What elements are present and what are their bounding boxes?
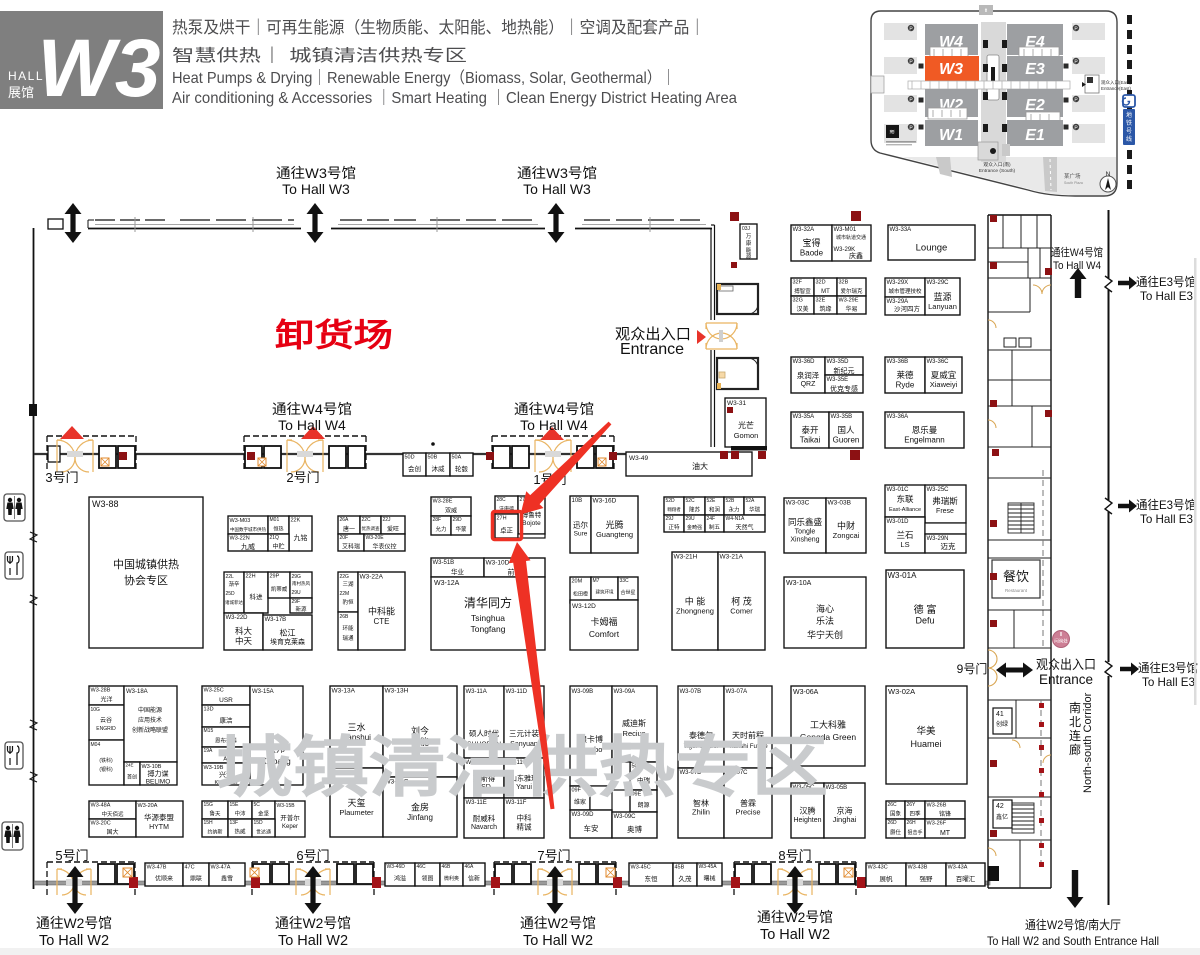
- svg-text:中国能源: 中国能源: [138, 706, 162, 714]
- svg-text:Jinghai: Jinghai: [833, 815, 857, 824]
- svg-text:百曜汇: 百曜汇: [956, 875, 976, 883]
- svg-text:会创: 会创: [408, 464, 421, 473]
- svg-text:华宁天创: 华宁天创: [807, 629, 843, 640]
- svg-text:W3-05B: W3-05B: [826, 785, 848, 791]
- svg-text:To Hall E3: To Hall E3: [1142, 675, 1195, 689]
- svg-text:四季: 四季: [909, 810, 921, 818]
- svg-text:能: 能: [746, 246, 752, 254]
- svg-text:22M: 22M: [340, 591, 350, 597]
- svg-text:世达通: 世达通: [256, 828, 271, 835]
- svg-text:Tongle: Tongle: [795, 528, 816, 535]
- svg-text:华易: 华易: [845, 305, 857, 313]
- svg-text:W3: W3: [38, 23, 161, 114]
- svg-text:东联: 东联: [896, 494, 914, 504]
- svg-text:(银科): (银科): [99, 766, 113, 773]
- svg-text:弗瑞斯: 弗瑞斯: [932, 496, 958, 506]
- svg-text:26D: 26D: [888, 820, 898, 826]
- svg-text:W3-20A: W3-20A: [138, 803, 158, 809]
- svg-text:热泵及烘干｜可再生能源（生物质能、太阳能、地热能）｜空调及配: 热泵及烘干｜可再生能源（生物质能、太阳能、地热能）｜空调及配套产品｜: [172, 18, 705, 37]
- svg-text:中财: 中财: [837, 520, 855, 531]
- svg-text:W3-29E: W3-29E: [839, 298, 859, 304]
- svg-text:合世星: 合世星: [620, 589, 635, 596]
- svg-text:32D: 32D: [816, 280, 826, 286]
- svg-text:餐饮: 餐饮: [1003, 569, 1029, 584]
- svg-text:南: 南: [1069, 700, 1081, 715]
- svg-text:轮毂: 轮毂: [455, 464, 469, 473]
- svg-text:10G: 10G: [91, 707, 101, 713]
- svg-text:爵仕: 爵仕: [890, 828, 902, 836]
- svg-text:22C: 22C: [362, 517, 372, 523]
- svg-text:Sure: Sure: [574, 530, 588, 537]
- svg-text:展帆: 展帆: [880, 874, 894, 883]
- svg-text:32G: 32G: [793, 298, 803, 304]
- svg-text:32B: 32B: [839, 280, 849, 286]
- svg-text:W3-43B: W3-43B: [908, 865, 928, 871]
- svg-text:奥博: 奥博: [627, 824, 642, 834]
- svg-text:W3-29A: W3-29A: [887, 299, 909, 305]
- svg-text:W3-47B: W3-47B: [147, 865, 167, 871]
- svg-text:凯蒂威: 凯蒂威: [271, 585, 288, 593]
- svg-text:松江: 松江: [280, 628, 296, 638]
- svg-text:华表仪控: 华表仪控: [372, 542, 396, 550]
- svg-text:华源泰盟: 华源泰盟: [144, 812, 174, 822]
- svg-text:康: 康: [746, 239, 752, 247]
- svg-text:To Hall W2: To Hall W2: [760, 927, 830, 943]
- svg-text:W3-13A: W3-13A: [332, 688, 356, 695]
- svg-text:21Q: 21Q: [270, 535, 280, 541]
- svg-text:Zhongneng: Zhongneng: [676, 607, 714, 616]
- svg-text:To Hall W2: To Hall W2: [278, 933, 348, 949]
- svg-text:33C: 33C: [620, 578, 630, 584]
- svg-text:W3-22D: W3-22D: [226, 615, 249, 621]
- svg-text:通往W2号馆: 通往W2号馆: [520, 915, 596, 931]
- svg-text:汉腾: 汉腾: [800, 806, 816, 816]
- svg-text:E2: E2: [1025, 97, 1045, 114]
- svg-text:Entrance: Entrance: [1039, 672, 1093, 687]
- svg-text:W3-16D: W3-16D: [593, 498, 617, 505]
- svg-text:W3-06A: W3-06A: [793, 689, 819, 696]
- svg-text:≋: ≋: [889, 129, 895, 136]
- svg-text:W3-25C: W3-25C: [204, 688, 224, 694]
- svg-text:9号门: 9号门: [957, 661, 988, 676]
- svg-text:光洋: 光洋: [100, 696, 112, 704]
- svg-text:32E: 32E: [816, 298, 826, 304]
- svg-text:唐一: 唐一: [343, 525, 355, 533]
- svg-text:号: 号: [1126, 128, 1132, 135]
- svg-text:华业: 华业: [451, 567, 465, 576]
- svg-text:车安: 车安: [584, 823, 599, 833]
- svg-text:兰石: 兰石: [896, 530, 913, 540]
- svg-text:29J: 29J: [666, 516, 675, 522]
- svg-text:W3-01D: W3-01D: [887, 519, 910, 525]
- svg-text:通往W2号馆: 通往W2号馆: [275, 915, 351, 931]
- svg-text:鸿溢: 鸿溢: [394, 874, 406, 882]
- svg-text:Lounge: Lounge: [916, 242, 948, 253]
- svg-text:52D: 52D: [666, 498, 676, 504]
- svg-text:W3-18A: W3-18A: [126, 689, 148, 695]
- svg-text:Lanyuan: Lanyuan: [928, 302, 957, 311]
- svg-text:通往E3号馆: 通往E3号馆: [1136, 497, 1196, 512]
- svg-text:Baode: Baode: [800, 249, 824, 258]
- svg-text:恩乐曼: 恩乐曼: [912, 425, 938, 435]
- svg-text:鑫亿: 鑫亿: [996, 813, 1008, 821]
- svg-text:信新: 信新: [468, 874, 480, 882]
- svg-text:Guangteng: Guangteng: [596, 530, 633, 539]
- svg-text:47C: 47C: [185, 865, 195, 871]
- svg-text:W3-07B: W3-07B: [680, 689, 702, 695]
- svg-text:W3-36D: W3-36D: [793, 359, 816, 365]
- svg-text:W3-M03: W3-M03: [230, 518, 251, 524]
- svg-text:13F: 13F: [230, 820, 239, 826]
- svg-text:正特: 正特: [668, 523, 680, 531]
- svg-text:柯 茂: 柯 茂: [731, 596, 752, 607]
- svg-text:ENGRID: ENGRID: [96, 726, 116, 732]
- svg-text:Heat Pumps & Drying｜Renewable: Heat Pumps & Drying｜Renewable Energy（Bio…: [172, 69, 676, 87]
- svg-text:27H: 27H: [497, 516, 507, 522]
- svg-text:W3-35B: W3-35B: [831, 414, 853, 420]
- svg-text:6号门: 6号门: [296, 848, 329, 863]
- svg-text:W3-51B: W3-51B: [433, 560, 455, 566]
- svg-text:Huamei: Huamei: [910, 739, 941, 749]
- svg-text:Xinsheng: Xinsheng: [790, 537, 819, 544]
- svg-text:To Hall W3: To Hall W3: [282, 181, 350, 197]
- svg-text:环能: 环能: [342, 624, 354, 632]
- svg-text:5号门: 5号门: [55, 848, 88, 863]
- svg-text:26B: 26B: [340, 614, 350, 620]
- svg-text:和润: 和润: [709, 506, 721, 514]
- svg-text:Entrance (South): Entrance (South): [979, 168, 1016, 174]
- svg-text:To Hall W4: To Hall W4: [278, 417, 346, 433]
- svg-text:26C: 26C: [888, 802, 898, 808]
- svg-text:52A: 52A: [746, 498, 756, 504]
- svg-text:北: 北: [1069, 715, 1081, 729]
- svg-text:W3-47A: W3-47A: [211, 865, 231, 871]
- svg-text:久茂: 久茂: [679, 874, 693, 883]
- svg-text:Defu: Defu: [915, 616, 934, 626]
- svg-text:29G: 29G: [292, 574, 302, 580]
- svg-text:搏力谋: 搏力谋: [148, 769, 169, 778]
- svg-text:Frese: Frese: [936, 508, 954, 515]
- svg-text:To Hall W3: To Hall W3: [523, 181, 591, 197]
- svg-text:问询处: 问询处: [1054, 638, 1068, 645]
- svg-text:19A: 19A: [204, 748, 214, 754]
- svg-text:W3-13H: W3-13H: [385, 688, 409, 695]
- svg-text:热威: 热威: [234, 828, 246, 836]
- svg-text:W3-03B: W3-03B: [828, 500, 851, 507]
- svg-text:Comer: Comer: [730, 607, 753, 616]
- svg-text:W3-15A: W3-15A: [252, 689, 274, 695]
- svg-text:智慧供热｜ 城镇清洁供热专区: 智慧供热｜ 城镇清洁供热专区: [172, 46, 467, 65]
- svg-text:20M: 20M: [572, 579, 583, 585]
- svg-text:观众出入口: 观众出入口: [1036, 657, 1096, 672]
- svg-text:制五: 制五: [709, 523, 721, 531]
- svg-text:Gomon: Gomon: [734, 431, 759, 440]
- svg-text:隆苏: 隆苏: [689, 506, 701, 514]
- svg-text:城市管理技校: 城市管理技校: [888, 287, 922, 295]
- svg-text:Plaumeter: Plaumeter: [339, 808, 374, 817]
- svg-text:通往E3号馆: 通往E3号馆: [1136, 274, 1196, 289]
- svg-text:W3-09B: W3-09B: [572, 689, 594, 695]
- svg-text:Restaurant: Restaurant: [1005, 588, 1028, 593]
- svg-text:中贮: 中贮: [272, 542, 284, 550]
- svg-text:通往W2号馆: 通往W2号馆: [757, 909, 833, 925]
- svg-text:通往W2号馆: 通往W2号馆: [36, 915, 112, 931]
- svg-text:W3-25C: W3-25C: [927, 487, 950, 493]
- svg-text:W3-12D: W3-12D: [572, 603, 596, 610]
- svg-text:10B: 10B: [572, 498, 583, 504]
- svg-text:22H: 22H: [246, 574, 256, 580]
- svg-text:泉润泽: 泉润泽: [797, 370, 820, 380]
- svg-text:W3-11D: W3-11D: [506, 689, 528, 695]
- svg-text:展馆: 展馆: [8, 85, 34, 100]
- svg-text:云谷: 云谷: [100, 716, 112, 724]
- svg-text:康洁: 康洁: [220, 715, 234, 724]
- svg-text:52E: 52E: [707, 498, 717, 504]
- svg-text:MT: MT: [821, 289, 830, 295]
- svg-text:豹恒: 豹恒: [342, 598, 354, 606]
- svg-text:22K: 22K: [291, 518, 301, 524]
- svg-text:耐威科: 耐威科: [473, 813, 496, 823]
- svg-text:源: 源: [746, 252, 752, 260]
- svg-text:恒热: 恒热: [273, 525, 283, 532]
- svg-text:Precise: Precise: [735, 808, 760, 817]
- svg-text:15G: 15G: [204, 802, 214, 808]
- svg-text:鼎联: 鼎联: [190, 875, 202, 883]
- svg-text:46A: 46A: [465, 864, 475, 870]
- svg-text:城市轨道交通: 城市轨道交通: [836, 234, 866, 241]
- svg-text:蓝源: 蓝源: [933, 291, 951, 302]
- svg-text:W3-43A: W3-43A: [948, 865, 968, 871]
- svg-text:W3-22N: W3-22N: [230, 536, 250, 542]
- svg-text:科大: 科大: [235, 626, 253, 636]
- svg-text:46B: 46B: [442, 864, 452, 870]
- svg-text:W3-20C: W3-20C: [91, 821, 111, 827]
- svg-text:国大: 国大: [106, 828, 118, 836]
- svg-text:W3-21H: W3-21H: [674, 554, 698, 561]
- svg-text:W3-M01: W3-M01: [834, 227, 857, 233]
- svg-text:Engelmann: Engelmann: [904, 435, 944, 444]
- svg-text:Air conditioning & Accessories: Air conditioning & Accessories ｜Smart He…: [172, 89, 737, 107]
- svg-text:地: 地: [1126, 111, 1132, 119]
- svg-text:M04: M04: [91, 742, 101, 748]
- svg-text:W3-20E: W3-20E: [366, 535, 385, 541]
- svg-text:铭锋: 铭锋: [939, 810, 951, 818]
- svg-text:W3-36C: W3-36C: [927, 359, 950, 365]
- svg-text:M7: M7: [593, 578, 600, 584]
- svg-text:W3-03C: W3-03C: [786, 500, 810, 507]
- svg-text:万: 万: [746, 233, 752, 240]
- svg-text:29U: 29U: [686, 516, 696, 522]
- svg-text:南村热风: 南村热风: [292, 580, 310, 587]
- svg-text:W3-33A: W3-33A: [890, 227, 912, 233]
- svg-text:爱尔瑞克: 爱尔瑞克: [840, 287, 863, 295]
- svg-text:26Y: 26Y: [907, 802, 917, 808]
- svg-text:W3-36B: W3-36B: [887, 359, 909, 365]
- svg-text:22J: 22J: [383, 517, 392, 523]
- svg-text:W3-45A: W3-45A: [699, 864, 718, 870]
- svg-text:国人: 国人: [837, 425, 855, 435]
- svg-text:天然气: 天然气: [735, 523, 753, 531]
- svg-text:诸城菲达: 诸城菲达: [225, 599, 243, 606]
- svg-text:双威: 双威: [445, 507, 457, 515]
- svg-text:工大科雅: 工大科雅: [810, 719, 846, 730]
- svg-text:优克专感: 优克专感: [830, 384, 858, 393]
- svg-text:爱旺: 爱旺: [387, 525, 399, 533]
- svg-text:⬆: ⬆: [984, 8, 988, 14]
- svg-text:29F: 29F: [292, 599, 301, 605]
- svg-text:W3-17B: W3-17B: [265, 617, 287, 623]
- svg-text:三湖: 三湖: [342, 580, 354, 588]
- svg-text:E1: E1: [1025, 127, 1045, 144]
- svg-text:Entrance: Entrance: [620, 341, 684, 358]
- svg-text:协会专区: 协会专区: [124, 573, 168, 587]
- svg-text:25D: 25D: [226, 591, 236, 597]
- svg-text:鲁天: 鲁天: [209, 810, 221, 818]
- svg-text:线: 线: [1126, 135, 1132, 143]
- svg-text:To Hall E3: To Hall E3: [1140, 289, 1193, 303]
- svg-text:威迪斯: 威迪斯: [622, 718, 646, 728]
- svg-text:Keper: Keper: [282, 824, 298, 830]
- svg-text:South Plaza: South Plaza: [1064, 181, 1083, 185]
- svg-text:领图: 领图: [421, 874, 433, 882]
- svg-text:50B: 50B: [428, 455, 438, 461]
- svg-text:20F: 20F: [340, 535, 349, 541]
- svg-text:某广场: 某广场: [1064, 172, 1081, 180]
- svg-text:3号门: 3号门: [45, 470, 78, 485]
- svg-text:7号门: 7号门: [537, 848, 570, 863]
- svg-text:W3-29C: W3-29C: [927, 280, 950, 286]
- svg-text:W3-35E: W3-35E: [827, 377, 849, 383]
- svg-text:连: 连: [1069, 728, 1081, 743]
- svg-text:W3-01C: W3-01C: [887, 487, 910, 493]
- svg-text:创绿: 创绿: [996, 720, 1008, 728]
- svg-text:卓正: 卓正: [500, 525, 514, 534]
- svg-text:微利奥: 微利奥: [444, 875, 459, 882]
- svg-text:W3-45C: W3-45C: [631, 865, 651, 871]
- svg-text:BELIMO: BELIMO: [146, 779, 171, 786]
- svg-text:LS: LS: [900, 540, 909, 549]
- svg-text:24F: 24F: [707, 516, 716, 522]
- svg-text:45B: 45B: [675, 865, 685, 871]
- svg-text:翱翔者: 翱翔者: [667, 506, 681, 513]
- svg-text:M01: M01: [270, 517, 280, 523]
- svg-text:W4-N1A: W4-N1A: [726, 516, 746, 522]
- svg-text:中国城镇供热: 中国城镇供热: [113, 557, 179, 571]
- svg-text:Heighten: Heighten: [793, 817, 821, 824]
- svg-text:MT: MT: [940, 830, 951, 837]
- svg-text:新纪元: 新纪元: [834, 366, 855, 375]
- svg-text:To Hall E3: To Hall E3: [1140, 512, 1193, 526]
- svg-text:通往W4号馆: 通往W4号馆: [1051, 245, 1103, 259]
- svg-text:W3-32A: W3-32A: [793, 227, 815, 233]
- svg-text:Tongfang: Tongfang: [471, 624, 506, 634]
- svg-text:优热调查: 优热调查: [362, 525, 380, 532]
- svg-text:宝得: 宝得: [802, 237, 820, 248]
- svg-text:W3-22A: W3-22A: [360, 574, 384, 581]
- svg-text:15D: 15D: [254, 820, 264, 826]
- svg-text:29U: 29U: [292, 590, 302, 596]
- svg-text:W3-88: W3-88: [92, 499, 119, 509]
- svg-text:03J: 03J: [742, 226, 751, 232]
- svg-text:W3-35A: W3-35A: [793, 414, 815, 420]
- svg-text:W3-43C: W3-43C: [868, 865, 888, 871]
- svg-text:油大: 油大: [692, 461, 708, 471]
- svg-text:海心: 海心: [816, 603, 834, 614]
- svg-text:To Hall W2: To Hall W2: [39, 933, 109, 949]
- svg-text:W3-09C: W3-09C: [614, 814, 637, 820]
- svg-text:To Hall W2 and South Entrance: To Hall W2 and South Entrance Hall: [987, 934, 1159, 948]
- svg-text:狙击手: 狙击手: [907, 829, 922, 836]
- svg-text:W3-26F: W3-26F: [927, 821, 947, 827]
- svg-text:首创: 首创: [127, 774, 137, 781]
- svg-text:光腾: 光腾: [605, 519, 623, 530]
- svg-text:Comfort: Comfort: [589, 629, 620, 639]
- svg-text:46C: 46C: [417, 864, 427, 870]
- svg-text:通往W2号馆/南大厅: 通往W2号馆/南大厅: [1025, 917, 1121, 932]
- svg-text:26A: 26A: [340, 517, 350, 523]
- svg-text:28C: 28C: [497, 497, 507, 503]
- svg-text:通往E3号馆: 通往E3号馆: [1138, 660, 1198, 675]
- svg-text:CTE: CTE: [374, 617, 390, 626]
- svg-text:乐法: 乐法: [816, 615, 834, 626]
- svg-text:W3-10B: W3-10B: [142, 764, 162, 770]
- svg-text:华美: 华美: [916, 725, 936, 737]
- svg-text:52C: 52C: [686, 498, 696, 504]
- svg-text:To Hall W4: To Hall W4: [520, 417, 588, 433]
- svg-text:W3-29X: W3-29X: [887, 280, 909, 286]
- svg-text:光芒: 光芒: [738, 420, 754, 430]
- svg-text:新源: 新源: [295, 605, 307, 613]
- svg-text:Taikai: Taikai: [800, 435, 821, 444]
- svg-text:强野: 强野: [920, 875, 934, 883]
- svg-text:22L: 22L: [226, 574, 235, 580]
- svg-text:N: N: [1106, 171, 1111, 178]
- svg-text:W3-10A: W3-10A: [786, 580, 812, 587]
- svg-text:W3-28E: W3-28E: [433, 499, 453, 505]
- svg-text:约纳斯: 约纳斯: [207, 828, 222, 835]
- svg-text:华蒙: 华蒙: [455, 525, 467, 533]
- svg-text:Guoren: Guoren: [833, 435, 860, 444]
- svg-text:50D: 50D: [405, 455, 415, 461]
- svg-text:通往W3号馆: 通往W3号馆: [276, 165, 356, 181]
- svg-text:庆鑫: 庆鑫: [849, 251, 863, 260]
- svg-text:中国数字城市供热: 中国数字城市供热: [230, 526, 266, 533]
- svg-text:Zongcai: Zongcai: [833, 531, 860, 540]
- svg-text:中科能: 中科能: [368, 605, 395, 616]
- svg-text:筑缘: 筑缘: [819, 305, 831, 313]
- svg-text:W3-28B: W3-28B: [91, 688, 111, 694]
- svg-text:松田橙: 松田橙: [573, 591, 588, 598]
- svg-text:渐辛: 渐辛: [228, 580, 240, 588]
- svg-text:华瑞: 华瑞: [749, 506, 761, 514]
- svg-text:W3-02A: W3-02A: [888, 687, 915, 696]
- svg-text:永力: 永力: [728, 506, 739, 514]
- svg-text:Navarch: Navarch: [471, 824, 497, 831]
- svg-text:13D: 13D: [204, 707, 214, 713]
- svg-text:建筑环境: 建筑环境: [596, 589, 614, 596]
- svg-text:W3-10D: W3-10D: [486, 560, 510, 567]
- svg-text:应用技术: 应用技术: [138, 716, 162, 724]
- svg-text:Zhilin: Zhilin: [692, 808, 710, 817]
- svg-text:42: 42: [996, 803, 1004, 810]
- svg-text:东恒: 东恒: [645, 874, 659, 883]
- svg-text:泰开: 泰开: [801, 425, 819, 435]
- svg-text:32F: 32F: [793, 280, 803, 286]
- svg-text:W3-35D: W3-35D: [827, 359, 850, 365]
- svg-text:九威: 九威: [241, 542, 255, 551]
- svg-text:创新战略联盟: 创新战略联盟: [132, 726, 168, 734]
- svg-text:W3-01A: W3-01A: [888, 571, 918, 580]
